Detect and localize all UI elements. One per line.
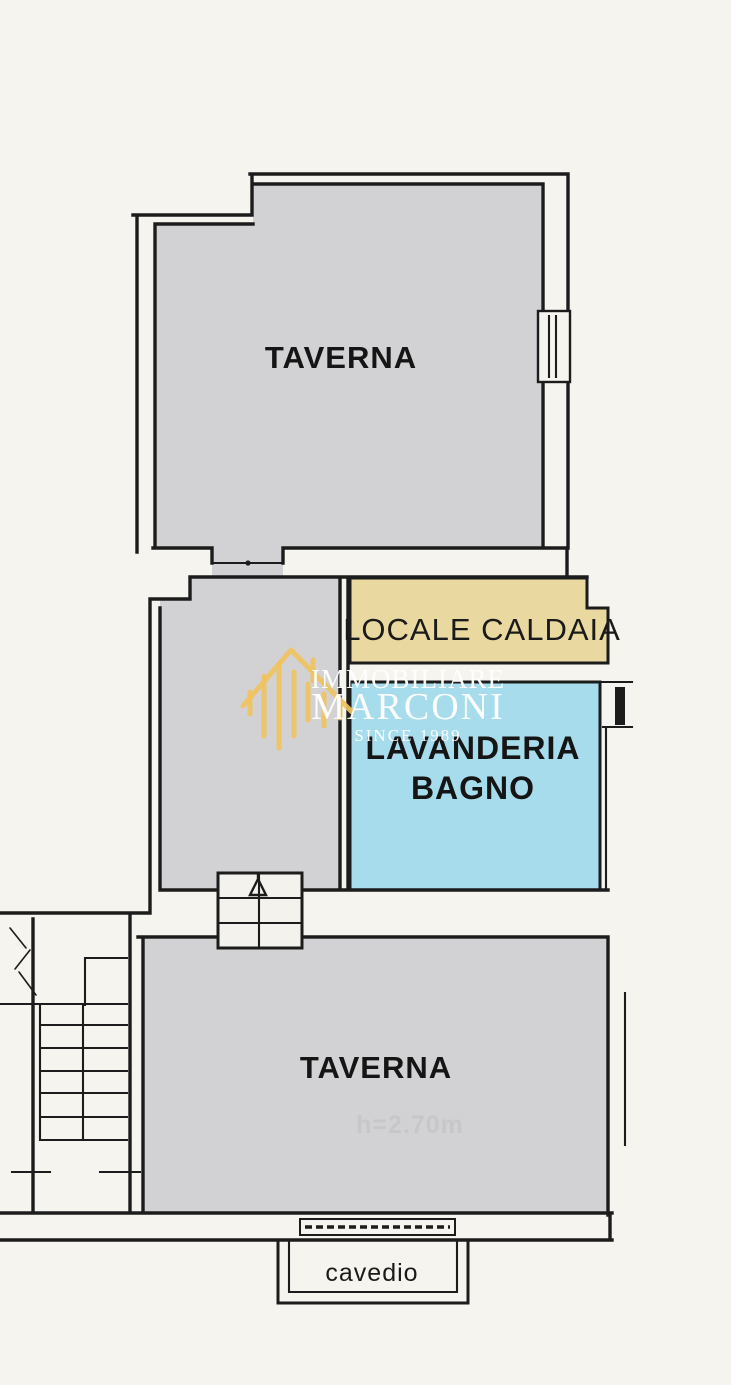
label-bagno: BAGNO [411, 770, 535, 806]
label-ghost-height: h=2.70m [356, 1111, 464, 1139]
label-locale-caldaia: LOCALE CALDAIA [343, 612, 621, 647]
floor-plan-page: TAVERNA LOCALE CALDAIA LAVANDERIA BAGNO … [0, 0, 731, 1385]
window-bottom [300, 1219, 455, 1235]
window-upper-right [538, 311, 570, 382]
vent-bar [615, 687, 625, 725]
label-taverna-lower: TAVERNA [300, 1050, 452, 1085]
watermark-tagline: SINCE 1989 [354, 726, 461, 745]
label-cavedio: cavedio [325, 1259, 418, 1287]
stair-block [218, 873, 302, 948]
label-taverna-upper: TAVERNA [265, 340, 417, 375]
watermark-line2: MARCONI [311, 686, 504, 728]
floor-plan-svg: TAVERNA LOCALE CALDAIA LAVANDERIA BAGNO … [0, 0, 731, 1385]
door-hinge-dot [245, 560, 250, 565]
